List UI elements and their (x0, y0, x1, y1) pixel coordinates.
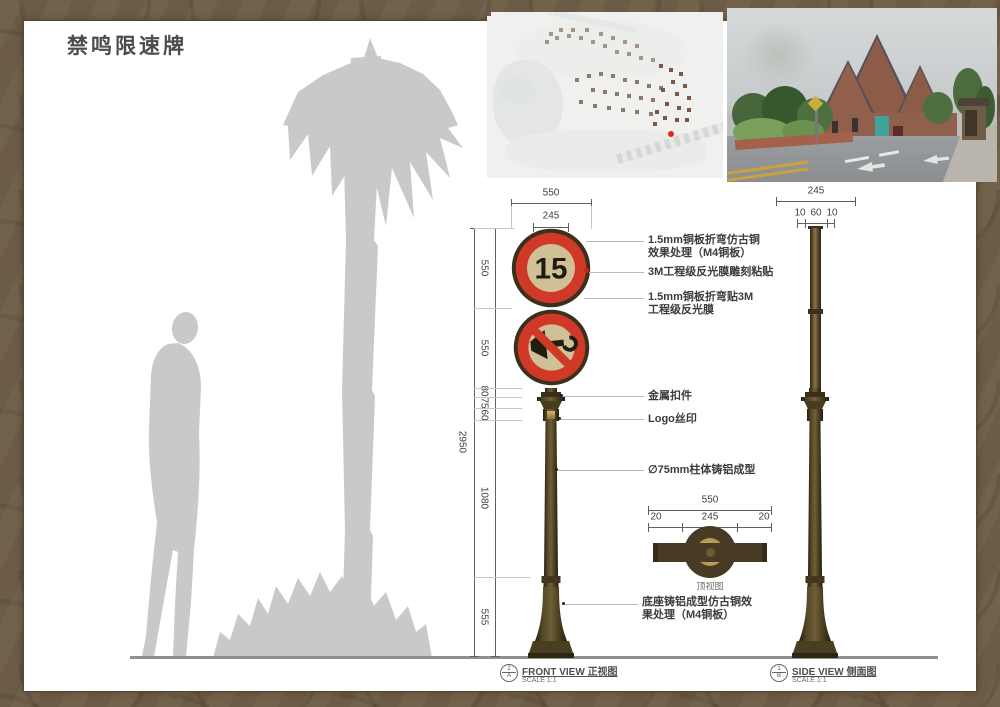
annotation-panel-film: 1.5mm铜板折弯贴3M 工程级反光膜 (648, 291, 753, 317)
design-sheet: 禁鸣限速牌 (0, 0, 1000, 707)
scale-silhouettes (118, 30, 470, 662)
marker-letter: A (501, 673, 517, 680)
front-pole (521, 388, 581, 658)
site-photo (727, 8, 997, 182)
shrub-silhouette (213, 572, 432, 658)
extension-line (474, 228, 514, 229)
side-panel-joint (808, 309, 823, 314)
photo-tree (923, 92, 953, 124)
dim-label: 10 (794, 208, 805, 219)
leader-line (589, 272, 644, 273)
speed-limit-sign: 15 (511, 228, 591, 308)
extension-line (511, 206, 512, 229)
dim-front-total-height (474, 228, 475, 657)
annotation-metal-fitting: 金属扣件 (648, 390, 692, 403)
logo-plate (547, 411, 555, 419)
photo-shelter-roof (958, 98, 990, 106)
leader-line (561, 419, 644, 420)
photo-entrance-sign (875, 116, 889, 138)
dim-label: 60 (810, 208, 821, 219)
topview-hub (706, 548, 715, 557)
extension-line (474, 308, 512, 309)
photo-window (832, 121, 838, 133)
dim-front-width-outer (511, 203, 592, 204)
marker-number: 2 (501, 666, 517, 673)
sign-location-dot (668, 131, 674, 137)
dim-label: 10 (826, 208, 837, 219)
dim-label: 75 (479, 397, 490, 408)
dim-label: 550 (543, 188, 560, 199)
photo-shelter-opening (965, 110, 977, 136)
leader-line (584, 298, 644, 299)
dim-label: 1080 (479, 487, 490, 509)
photo-window (852, 118, 858, 132)
annotation-panel-material: 1.5mm铜板折弯仿古铜 效果处理（M4铜板） (648, 234, 760, 260)
dim-tick (805, 219, 806, 228)
annotation-reflective-film: 3M工程级反光膜雕刻粘贴 (648, 266, 773, 279)
front-view-scale: SCALE 1:1 (522, 677, 557, 684)
dim-label: 550 (479, 340, 490, 357)
palm-trunk-silhouette (341, 56, 381, 658)
marker-letter: B (771, 673, 787, 680)
leader-line (586, 241, 644, 242)
dim-tick (827, 219, 828, 228)
leader-anchor-dot (558, 417, 561, 420)
no-honking-sign (513, 309, 590, 386)
extension-line (474, 388, 522, 389)
photo-bare-trees (741, 22, 815, 88)
leader-anchor-dot (562, 602, 565, 605)
dim-label: 550 (702, 495, 719, 506)
dim-label: 20 (650, 512, 661, 523)
person-body-silhouette (142, 343, 201, 657)
dim-label: 60 (479, 409, 490, 420)
leader-line (558, 470, 644, 471)
side-view-marker: 1 B (770, 664, 788, 682)
extension-line (591, 206, 592, 229)
annotation-pole-spec: ∅75mm柱体铸铝成型 (648, 464, 755, 477)
map-houses-cluster-3 (487, 12, 491, 16)
topview-label: 顶视图 (696, 580, 723, 593)
dim-side-sub (797, 223, 835, 224)
side-view-label: SIDE VIEW 侧面图 (792, 663, 876, 678)
front-view-marker: 2 A (500, 664, 518, 682)
dim-label: 20 (758, 512, 769, 523)
annotation-base-spec: 底座铸铝成型仿古铜效 果处理（M4铜板） (642, 596, 752, 622)
leader-anchor-dot (555, 468, 558, 471)
extension-line (474, 420, 522, 421)
speed-value: 15 (535, 252, 568, 285)
dim-front-segments (495, 228, 496, 657)
dim-side-outer (776, 201, 856, 202)
leader-line (563, 396, 644, 397)
map-lake (501, 78, 535, 104)
person-head-silhouette (170, 310, 200, 345)
dim-label: 2950 (457, 431, 468, 453)
dim-label: 555 (479, 609, 490, 626)
leader-line (564, 604, 638, 605)
side-view-scale: SCALE 1:1 (792, 677, 827, 684)
leader-anchor-dot (560, 394, 563, 397)
dim-label: 245 (543, 211, 560, 222)
annotation-logo-print: Logo丝印 (648, 413, 697, 426)
dim-label: 245 (702, 512, 719, 523)
marker-number: 1 (771, 666, 787, 673)
pole-shaft (544, 421, 558, 577)
extension-line (474, 397, 522, 398)
dim-tick (682, 523, 683, 532)
extension-line (474, 408, 522, 409)
front-view-label: FRONT VIEW 正视图 (522, 663, 618, 678)
pole-base-flare (535, 587, 567, 641)
dim-label: 550 (479, 260, 490, 277)
dim-label: 245 (808, 186, 825, 197)
site-plan-map (487, 12, 723, 178)
dim-tick (737, 523, 738, 532)
side-pole (785, 388, 845, 658)
